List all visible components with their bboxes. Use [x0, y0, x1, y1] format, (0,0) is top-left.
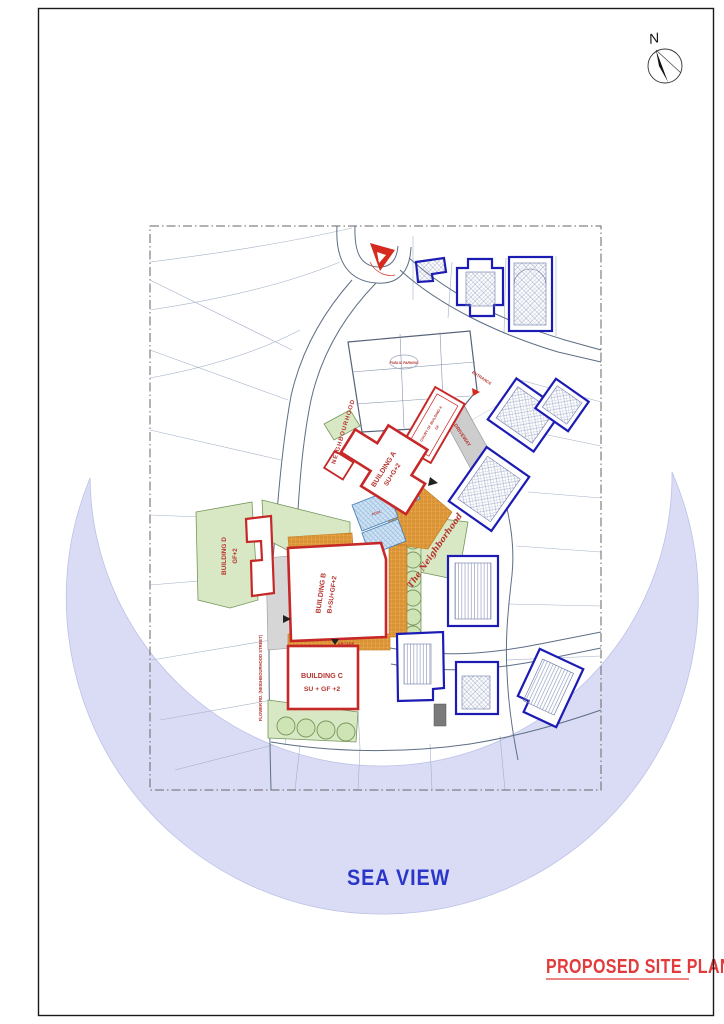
sea-view-label-group: SEA VIEW [347, 866, 450, 890]
existing-building [456, 662, 498, 714]
building-b-shape [288, 543, 386, 641]
building-c-floors: SU + GF +2 [304, 686, 340, 693]
utility-block [434, 704, 446, 726]
existing-building [448, 556, 498, 626]
building-c-name: BUILDING C [301, 671, 343, 680]
building-d-name: BUILDING D [221, 537, 228, 575]
existing-building [509, 257, 552, 331]
public-parking-label: PUBLIC PARKING [390, 361, 419, 365]
flower-road-label: FLOWER RD. (NEIGHBOURHOOD STREET) [258, 634, 263, 721]
drawing-sheet: POOL PUBLIC PARKING [0, 0, 724, 1024]
drawing-title-group: PROPOSED SITE PLAN [546, 955, 724, 979]
drawing-title: PROPOSED SITE PLAN [546, 955, 724, 977]
building-d-floors: GF+2 [233, 548, 239, 564]
site-plan-canvas: POOL PUBLIC PARKING [0, 0, 724, 1024]
arcade-label: ARCADE [338, 642, 355, 646]
sea-view-label: SEA VIEW [347, 866, 450, 890]
